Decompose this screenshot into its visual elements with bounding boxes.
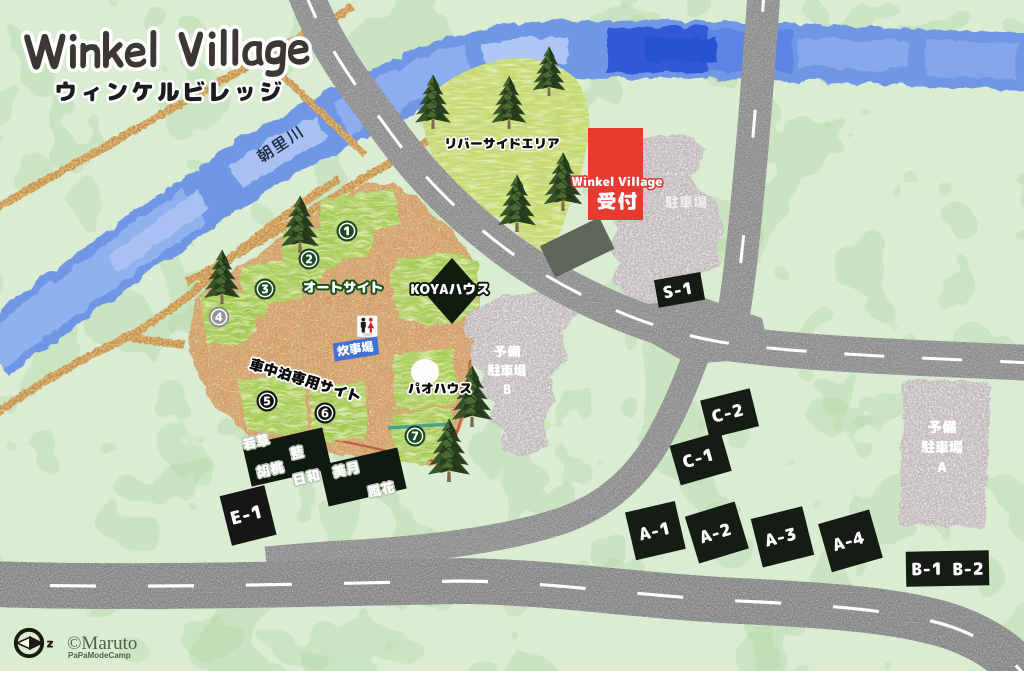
svg-text:PaPaModeCamp: PaPaModeCamp xyxy=(68,651,131,660)
svg-text:TOILET: TOILET xyxy=(363,333,372,337)
